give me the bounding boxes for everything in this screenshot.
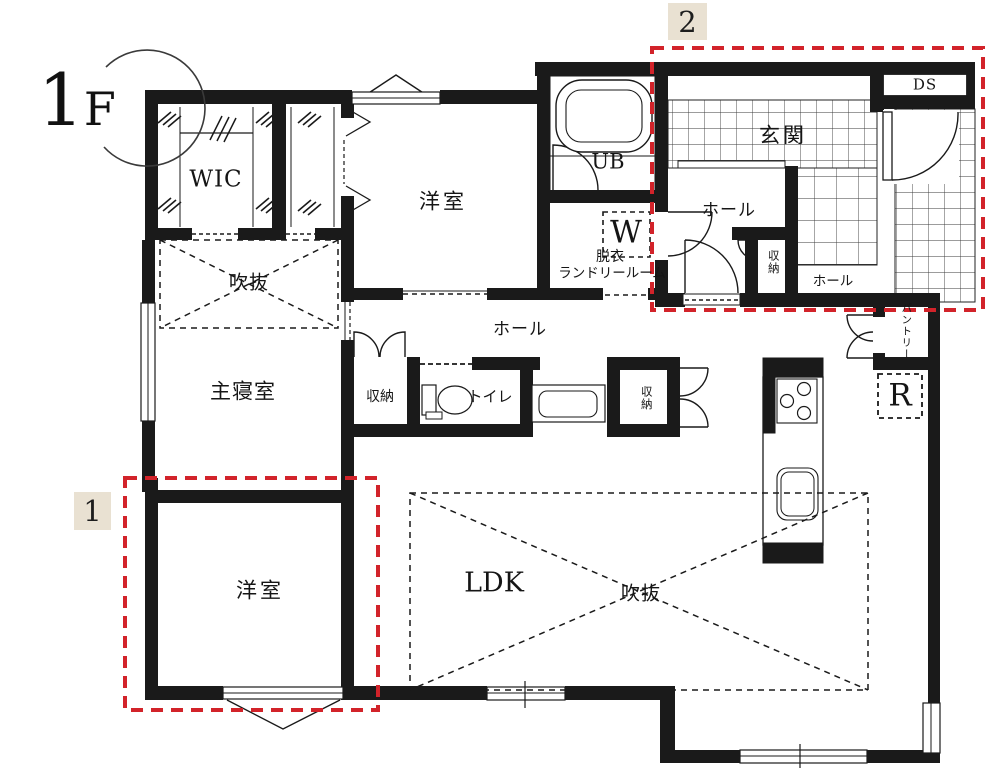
room-label-storage-entrance: 収納: [767, 250, 779, 275]
room-label-bedroom-upper: 洋室: [419, 192, 467, 213]
marker-2: 2: [668, 3, 707, 40]
room-label-pantry: パントリー: [901, 302, 912, 360]
fridge-label: R: [888, 381, 911, 412]
washer-label: W: [610, 218, 642, 249]
room-label-genkan: 玄関: [759, 126, 807, 147]
room-label-void-upper: 吹抜: [229, 274, 269, 293]
pantry-double-door: [847, 315, 873, 358]
hall-storage-double-door: [354, 332, 405, 357]
floor-letter: F: [84, 86, 116, 132]
room-label-ub: UB: [591, 152, 624, 173]
washbasin-icon: [532, 385, 605, 422]
room-label-hall-entrance: ホール: [702, 203, 756, 220]
floor-plan: 1F 1 2 WIC 洋室 UB W 脱衣 ランドリールーム 玄関 DS ホール…: [0, 0, 989, 768]
bathtub-icon: [550, 76, 655, 193]
room-label-void-lower: 吹抜: [621, 585, 661, 604]
marker-1: 1: [74, 492, 111, 530]
room-label-datsui: 脱衣: [596, 250, 624, 264]
cooktop-icon: [777, 379, 817, 423]
void-areas: [160, 240, 868, 690]
room-label-ldk: LDK: [464, 570, 524, 597]
room-label-toilet: トイレ: [467, 390, 512, 405]
room-label-hall-genkan: ホール: [813, 275, 854, 289]
kitchen-island: [763, 358, 823, 563]
toilet-icon: [422, 385, 472, 419]
floor-number: 1: [38, 64, 84, 136]
room-label-hall-middle: ホール: [493, 322, 547, 339]
front-door: [883, 110, 959, 184]
room-label-storage-hall-left: 収納: [366, 390, 394, 404]
floor-badge: 1F: [38, 64, 116, 136]
closet-hanger-symbols: [158, 107, 334, 227]
entrance-step: [678, 161, 785, 168]
room-label-storage-hall-right: 収納: [640, 386, 652, 411]
room-label-ds: DS: [913, 78, 937, 93]
room-label-laundry: ランドリールーム: [558, 267, 666, 281]
sink-icon: [777, 468, 818, 520]
bay-window-bottom: [227, 700, 340, 729]
room-label-bedroom-lower: 洋室: [236, 581, 284, 602]
floor-plan-drawing: [0, 0, 989, 768]
room-label-wic: WIC: [189, 169, 242, 192]
ldk-double-door: [680, 368, 708, 427]
room-label-master-bedroom: 主寝室: [210, 382, 276, 403]
